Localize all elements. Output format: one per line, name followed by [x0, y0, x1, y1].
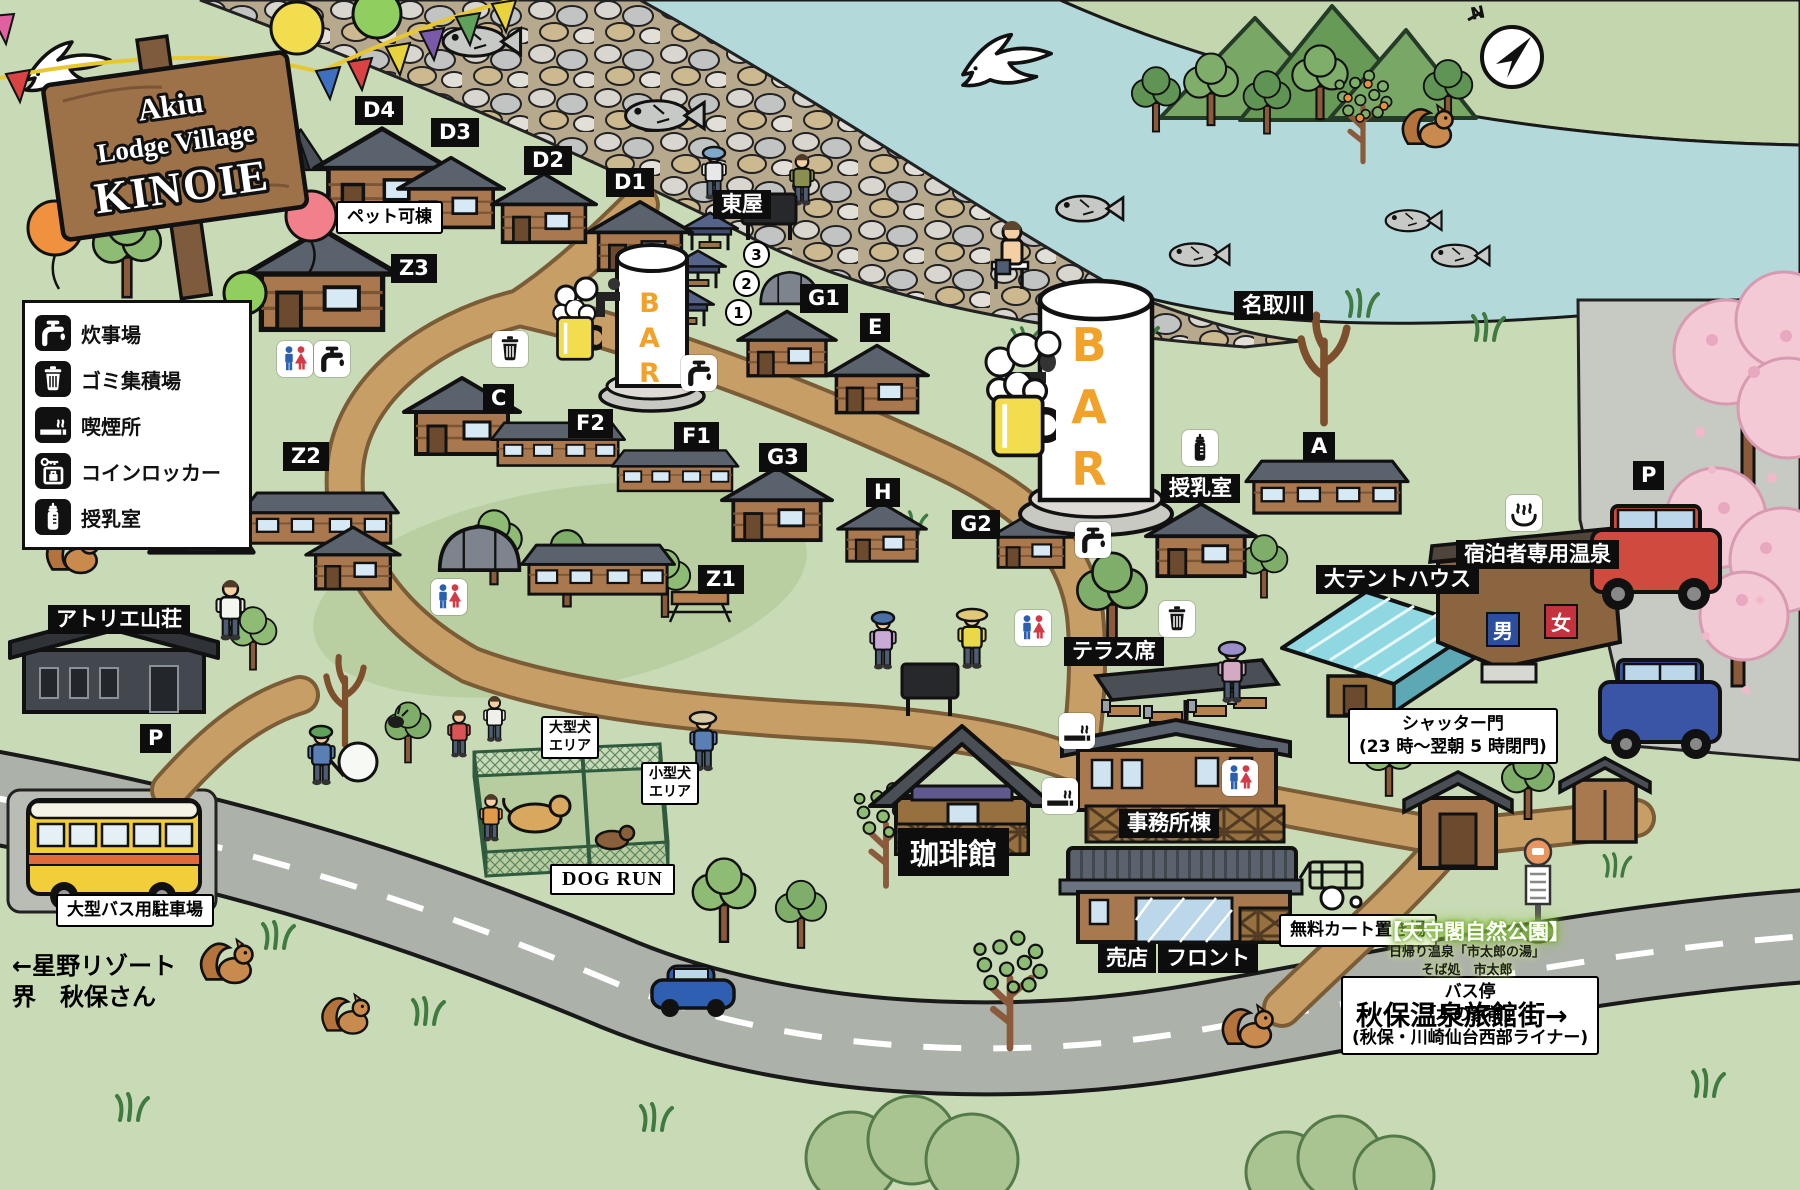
label-lodge-h: H	[866, 478, 900, 507]
legend-item-locker: コインロッカー	[35, 453, 239, 489]
label-lodge-c: C	[483, 384, 514, 413]
label-onsen-men: 男	[1486, 612, 1520, 647]
trash-icon	[1159, 601, 1195, 637]
restroom-icon	[1222, 760, 1258, 796]
legend-label: コインロッカー	[81, 457, 221, 486]
legend-item-faucet: 炊事場	[35, 315, 239, 351]
label-parking-left: P	[140, 724, 171, 753]
label-lodge-z1: Z1	[698, 565, 744, 594]
label-gazebo-2: 2	[733, 270, 760, 297]
label-large-bus-parking: 大型バス用駐車場	[56, 894, 214, 927]
akiu-lodge-village-map: N	[0, 0, 1800, 1190]
label-small-dog-area: 小型犬 エリア	[641, 762, 699, 805]
legend-item-smoking: 喫煙所	[35, 407, 239, 443]
smoking-icon	[1042, 778, 1078, 814]
map-legend: 炊事場ゴミ集積場喫煙所コインロッカー授乳室	[22, 300, 252, 550]
label-gazebo-3: 3	[743, 241, 770, 268]
label-azumaya: 東屋	[713, 190, 771, 219]
label-tenshukaku-detail: 日帰り温泉「市太郎の湯」 そば処 市太郎	[1389, 944, 1545, 980]
label-large-tent-house: 大テントハウス	[1316, 565, 1479, 594]
faucet-icon	[35, 315, 71, 351]
smoking-icon	[35, 407, 71, 443]
label-large-dog-area: 大型犬 エリア	[541, 716, 599, 759]
onsen-icon	[1506, 495, 1542, 531]
label-akiu-onsen-street: 秋保温泉旅館街→	[1356, 994, 1568, 1033]
label-atelier-sanso: アトリエ山荘	[48, 605, 190, 634]
label-lodge-d3: D3	[431, 118, 479, 147]
label-terrace-seats: テラス席	[1064, 637, 1164, 666]
label-onsen-women: 女	[1544, 604, 1578, 639]
label-gazebo-1: 1	[725, 299, 752, 326]
label-lodge-d2: D2	[524, 146, 572, 175]
bottle-icon	[1182, 430, 1218, 466]
label-lodge-z2: Z2	[283, 442, 329, 471]
front-shop-building	[1060, 848, 1302, 942]
restroom-icon	[277, 341, 313, 377]
smoking-icon	[1059, 713, 1095, 749]
legend-item-bottle: 授乳室	[35, 499, 239, 535]
legend-item-trash: ゴミ集積場	[35, 361, 239, 397]
legend-label: ゴミ集積場	[81, 365, 181, 394]
legend-label: 炊事場	[81, 319, 141, 348]
restroom-icon	[1015, 610, 1051, 646]
dog-run-area	[474, 744, 668, 876]
label-natori-river: 名取川	[1234, 291, 1313, 320]
bar-tank-label: BAR	[1066, 318, 1112, 504]
bottle-icon	[35, 499, 71, 535]
label-lodge-z3: Z3	[391, 254, 437, 283]
label-guest-only-onsen: 宿泊者専用温泉	[1456, 540, 1619, 569]
label-shutter-gate: シャッター門 (23 時〜翌朝 5 時閉門)	[1348, 708, 1558, 764]
label-office-building: 事務所棟	[1119, 809, 1219, 838]
faucet-icon	[681, 355, 717, 391]
trash-icon	[492, 331, 528, 367]
faucet-icon	[314, 341, 350, 377]
label-lodge-d1: D1	[606, 168, 654, 197]
legend-label: 喫煙所	[81, 411, 141, 440]
label-front-desk: フロント	[1158, 944, 1258, 973]
faucet-icon	[1075, 522, 1111, 558]
label-pet-allowed: ペット可棟	[336, 201, 443, 234]
label-parking-right: P	[1633, 461, 1664, 490]
label-tenshukaku-park: 【天守閣自然公園】	[1381, 916, 1570, 946]
label-lodge-e: E	[860, 313, 890, 342]
bar-tank-label: BAR	[636, 288, 663, 393]
label-lodge-a: A	[1303, 432, 1335, 461]
label-coffee-house: 珈琲館	[898, 828, 1009, 876]
label-lodge-f1: F1	[674, 422, 719, 451]
label-lodge-g2: G2	[952, 510, 1000, 539]
legend-label: 授乳室	[81, 503, 141, 532]
label-lodge-g1: G1	[800, 284, 848, 313]
label-hoshino-resort: ←星野リゾート 界 秋保さん	[12, 951, 176, 1013]
label-dog-run: DOG RUN	[550, 864, 675, 895]
label-nursing-room: 授乳室	[1161, 474, 1240, 503]
label-shop: 売店	[1098, 944, 1156, 973]
trash-icon	[35, 361, 71, 397]
label-lodge-d4: D4	[355, 96, 403, 125]
label-lodge-g3: G3	[759, 443, 807, 472]
restroom-icon	[431, 579, 467, 615]
locker-icon	[35, 453, 71, 489]
label-lodge-f2: F2	[568, 409, 613, 438]
